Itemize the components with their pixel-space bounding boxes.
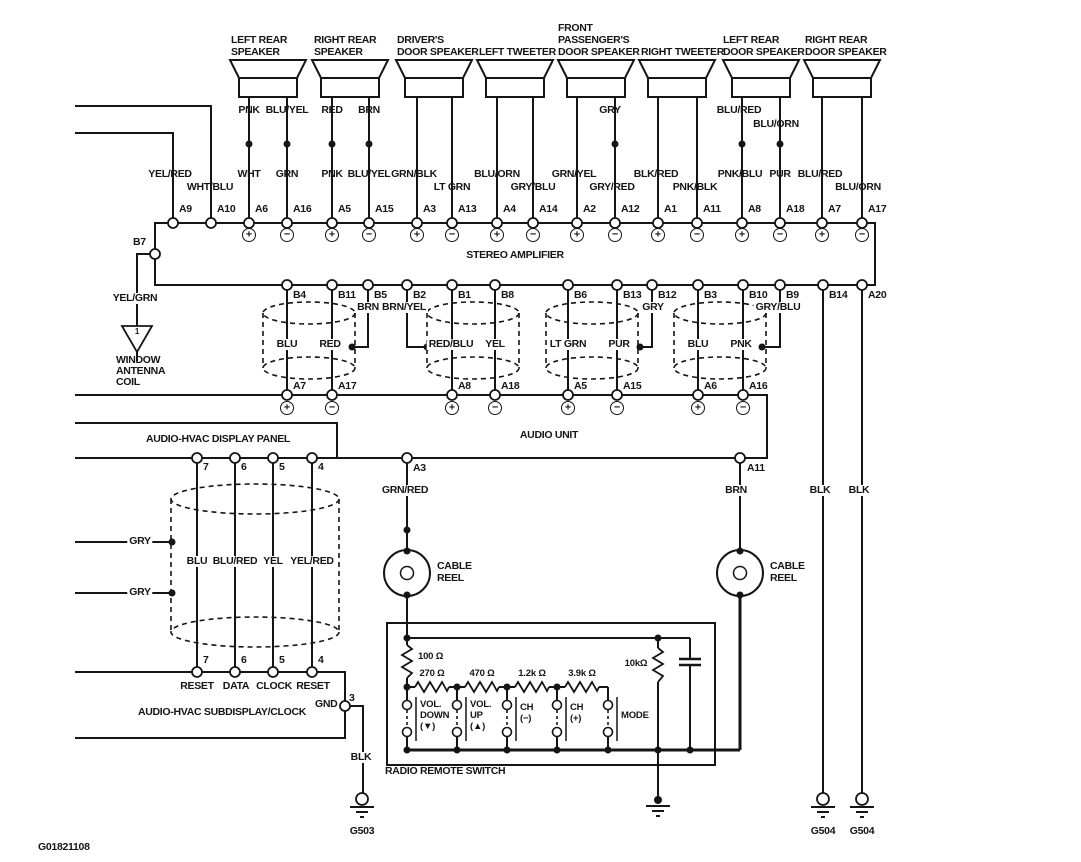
wire-color-label: BLU/RED	[717, 105, 762, 116]
polarity-symbol: +	[325, 228, 339, 242]
connector-pin-label: B4	[293, 290, 306, 301]
speaker-label: PASSENGER'S	[558, 35, 629, 46]
component-label: REEL	[437, 573, 464, 584]
connector-pin-label: A7	[293, 381, 306, 392]
wire-color-label: PNK/BLU	[718, 169, 763, 180]
connector-pin-label: A17	[338, 381, 356, 392]
wire-color-label: PNK	[321, 169, 342, 180]
polarity-symbol: +	[570, 228, 584, 242]
wire-color-label: WHT/BLU	[187, 182, 233, 193]
wire-color-label: PNK/BLK	[673, 182, 718, 193]
polarity-symbol: +	[561, 401, 575, 415]
connector-pin-label: B14	[829, 290, 847, 301]
wire-color-label: BLU/YEL	[348, 169, 391, 180]
polarity-symbol: +	[691, 401, 705, 415]
wire-color-label: PNK	[238, 105, 259, 116]
polarity-symbol: −	[526, 228, 540, 242]
wire-color-label: PUR	[769, 169, 790, 180]
connector-pin-label: A20	[868, 290, 886, 301]
speaker-label: DOOR SPEAKER	[805, 47, 887, 58]
speaker-label: LEFT TWEETER	[479, 47, 556, 58]
wire-color-label: BLU/ORN	[835, 182, 881, 193]
connector-pin-label: A10	[217, 204, 235, 215]
switch-label: (▼)	[420, 721, 435, 732]
wire-color-label: WHT	[237, 169, 260, 180]
component-label: AUDIO-HVAC SUBDISPLAY/CLOCK	[138, 707, 306, 718]
connector-pin-label: B6	[574, 290, 587, 301]
wire-color-label: YEL	[261, 556, 285, 567]
connector-pin-label: A16	[749, 381, 767, 392]
speaker-label: DOOR SPEAKER	[558, 47, 640, 58]
wire-color-label: PUR	[606, 339, 631, 350]
connector-pin-label: A6	[255, 204, 268, 215]
connector-pin-label: A15	[623, 381, 641, 392]
polarity-symbol: −	[445, 228, 459, 242]
switch-label: VOL.	[470, 699, 491, 710]
switch-label: VOL.	[420, 699, 441, 710]
connector-pin-label: A1	[664, 204, 677, 215]
wire-color-label: BLK/RED	[634, 169, 679, 180]
component-label: AUDIO UNIT	[520, 430, 578, 441]
ground-icons	[350, 793, 874, 817]
connector-pin-label: 6	[241, 655, 247, 666]
antenna-number-label: 1	[135, 326, 139, 337]
polarity-symbol: +	[735, 228, 749, 242]
wire-color-label: YEL/GRN	[111, 293, 160, 304]
connector-pin-label: A4	[503, 204, 516, 215]
wire-color-label: GRN/BLK	[391, 169, 437, 180]
speaker-label: DOOR SPEAKER	[723, 47, 805, 58]
wire-color-label: GRN	[276, 169, 298, 180]
capacitor-icon	[679, 659, 701, 665]
polarity-symbol: −	[608, 228, 622, 242]
connector-pin-label: A11	[703, 204, 721, 215]
polarity-symbol: −	[610, 401, 624, 415]
connector-pin-label: 6	[241, 462, 247, 473]
wire-color-label: YEL/RED	[148, 169, 191, 180]
polarity-symbol: +	[280, 401, 294, 415]
ground-label: G503	[350, 826, 375, 837]
connector-pin-label: A8	[748, 204, 761, 215]
connector-pin-label: B12	[658, 290, 676, 301]
wire-color-label: BLK	[808, 485, 833, 496]
wire-color-label: BLU/YEL	[266, 105, 309, 116]
connector-pin-label: B7	[133, 237, 146, 248]
connector-pin-label: A3	[423, 204, 436, 215]
connector-pin-label: A17	[868, 204, 886, 215]
polarity-symbol: +	[651, 228, 665, 242]
connector-pin-label: 7	[203, 655, 209, 666]
ground-label: G504	[811, 826, 836, 837]
polarity-symbol: −	[736, 401, 750, 415]
wire-color-label: BRN/YEL	[380, 302, 428, 313]
signal-name-label: RESET	[180, 681, 214, 692]
wire-color-label: BLU/RED	[211, 556, 260, 567]
connector-pin-label: 3	[349, 693, 355, 704]
switch-label: MODE	[621, 710, 649, 721]
connector-pin-label: A18	[786, 204, 804, 215]
connector-pin-label: A12	[621, 204, 639, 215]
connector-pin-label: A8	[458, 381, 471, 392]
connector-pin-label: A14	[539, 204, 557, 215]
polarity-symbol: −	[362, 228, 376, 242]
connector-pin-label: B9	[786, 290, 799, 301]
wire-color-label: BLK	[847, 485, 872, 496]
wire-color-label: GRY/BLU	[754, 302, 803, 313]
connector-pin-label: B3	[704, 290, 717, 301]
drawing-number: G01821108	[38, 842, 90, 853]
component-label: AUDIO-HVAC DISPLAY PANEL	[146, 434, 290, 445]
signal-name-label: GND	[315, 699, 337, 710]
signal-name-label: RESET	[296, 681, 330, 692]
wire-color-label: GRY	[127, 587, 152, 598]
polarity-symbol: −	[488, 401, 502, 415]
wire-color-label: RED	[321, 105, 342, 116]
wire-color-label: BLU/ORN	[474, 169, 520, 180]
wire-color-label: BLK	[349, 752, 374, 763]
wire-color-label: GRY	[640, 302, 665, 313]
connector-pin-label: 4	[318, 655, 324, 666]
wire-color-label: BLU	[686, 339, 711, 350]
wire-color-label: BLU	[185, 556, 210, 567]
wire-color-label: GRY	[127, 536, 152, 547]
wire-color-label: GRN/RED	[380, 485, 430, 496]
polarity-symbol: +	[815, 228, 829, 242]
speaker-label: RIGHT REAR	[314, 35, 376, 46]
wire-color-label: BRN	[355, 302, 381, 313]
connector-pin-label: A5	[338, 204, 351, 215]
polarity-symbol: −	[280, 228, 294, 242]
speaker-label: DRIVER'S	[397, 35, 444, 46]
speaker-label: SPEAKER	[231, 47, 280, 58]
connector-pin-label: A15	[375, 204, 393, 215]
speaker-label: FRONT	[558, 23, 593, 34]
wire-color-label: LT GRN	[548, 339, 589, 350]
wire-color-label: GRY/RED	[589, 182, 634, 193]
wire-color-label: BLU	[275, 339, 300, 350]
polarity-symbol: −	[690, 228, 704, 242]
connector-pin-label: A18	[501, 381, 519, 392]
resistor-value-label: 270 Ω	[419, 668, 444, 679]
wire-color-label: YEL	[483, 339, 507, 350]
connector-pin-label: B13	[623, 290, 641, 301]
resistor-value-label: 470 Ω	[469, 668, 494, 679]
signal-name-label: DATA	[223, 681, 249, 692]
speaker-label: LEFT REAR	[723, 35, 779, 46]
connector-pin-label: B10	[749, 290, 767, 301]
switch-label: (▲)	[470, 721, 485, 732]
connector-pin-label: 5	[279, 462, 285, 473]
speaker-icons	[230, 60, 880, 97]
resistor-value-label: 3.9k Ω	[568, 668, 596, 679]
signal-name-label: CLOCK	[256, 681, 292, 692]
polarity-symbol: −	[773, 228, 787, 242]
component-label: CABLE	[770, 561, 805, 572]
connector-pin-label: B2	[413, 290, 426, 301]
switch-label: (+)	[570, 713, 581, 724]
connector-pin-label: 4	[318, 462, 324, 473]
connector-pin-label: A16	[293, 204, 311, 215]
wire-color-label: RED/BLU	[427, 339, 476, 350]
wire-color-label: GRY	[599, 105, 620, 116]
polarity-symbol: −	[855, 228, 869, 242]
wiring-diagram-page: LEFT REAR SPEAKER RIGHT REAR SPEAKER DRI…	[0, 0, 1081, 862]
polarity-symbol: +	[410, 228, 424, 242]
resistor-value-label: 1.2k Ω	[518, 668, 546, 679]
component-label: RADIO REMOTE SWITCH	[385, 766, 505, 777]
speaker-label: LEFT REAR	[231, 35, 287, 46]
switch-label: DOWN	[420, 710, 449, 721]
wire-color-label: LT GRN	[434, 182, 471, 193]
wire-color-label: PNK	[728, 339, 753, 350]
wire-color-label: BRN	[723, 485, 749, 496]
connector-pin-label: B1	[458, 290, 471, 301]
wire-color-label: GRN/YEL	[552, 169, 597, 180]
wire-color-label: BLU/RED	[798, 169, 843, 180]
component-label: REEL	[770, 573, 797, 584]
switch-label: (−)	[520, 713, 531, 724]
wire-color-label: GRY/BLU	[511, 182, 556, 193]
connector-pin-label: 7	[203, 462, 209, 473]
speaker-label: RIGHT TWEETER	[641, 47, 724, 58]
component-label: STEREO AMPLIFIER	[466, 250, 563, 261]
connector-pin-label: B8	[501, 290, 514, 301]
wire-color-label: BLU/ORN	[753, 119, 799, 130]
shield-cylinder-icons	[171, 302, 766, 647]
wire-color-label: BRN	[358, 105, 380, 116]
component-label: CABLE	[437, 561, 472, 572]
connector-pin-label: A13	[458, 204, 476, 215]
switch-label: UP	[470, 710, 483, 721]
connector-pin-label: A6	[704, 381, 717, 392]
wire-color-label: RED	[317, 339, 342, 350]
switch-label: CH	[520, 702, 533, 713]
connector-pin-label: A7	[828, 204, 841, 215]
polarity-symbol: +	[242, 228, 256, 242]
ground-label: G504	[850, 826, 875, 837]
resistor-value-label: 100 Ω	[418, 651, 443, 662]
speaker-label: DOOR SPEAKER	[397, 47, 479, 58]
component-label: COIL	[116, 377, 140, 388]
polarity-symbol: −	[325, 401, 339, 415]
wire-color-label: YEL/RED	[288, 556, 335, 567]
connector-pin-label: A3	[413, 463, 426, 474]
connector-pin-label: A5	[574, 381, 587, 392]
polarity-symbol: +	[445, 401, 459, 415]
connector-pin-label: A11	[747, 463, 765, 474]
connector-pin-label: A2	[583, 204, 596, 215]
resistor-value-label: 10kΩ	[625, 658, 648, 669]
connector-pin-label: A9	[179, 204, 192, 215]
polarity-symbol: +	[490, 228, 504, 242]
speaker-label: RIGHT REAR	[805, 35, 867, 46]
connector-pin-label: B11	[338, 290, 356, 301]
connector-pin-label: B5	[374, 290, 387, 301]
speaker-label: SPEAKER	[314, 47, 363, 58]
switch-label: CH	[570, 702, 583, 713]
radio-remote-switch-box	[387, 623, 715, 765]
connector-pin-label: 5	[279, 655, 285, 666]
